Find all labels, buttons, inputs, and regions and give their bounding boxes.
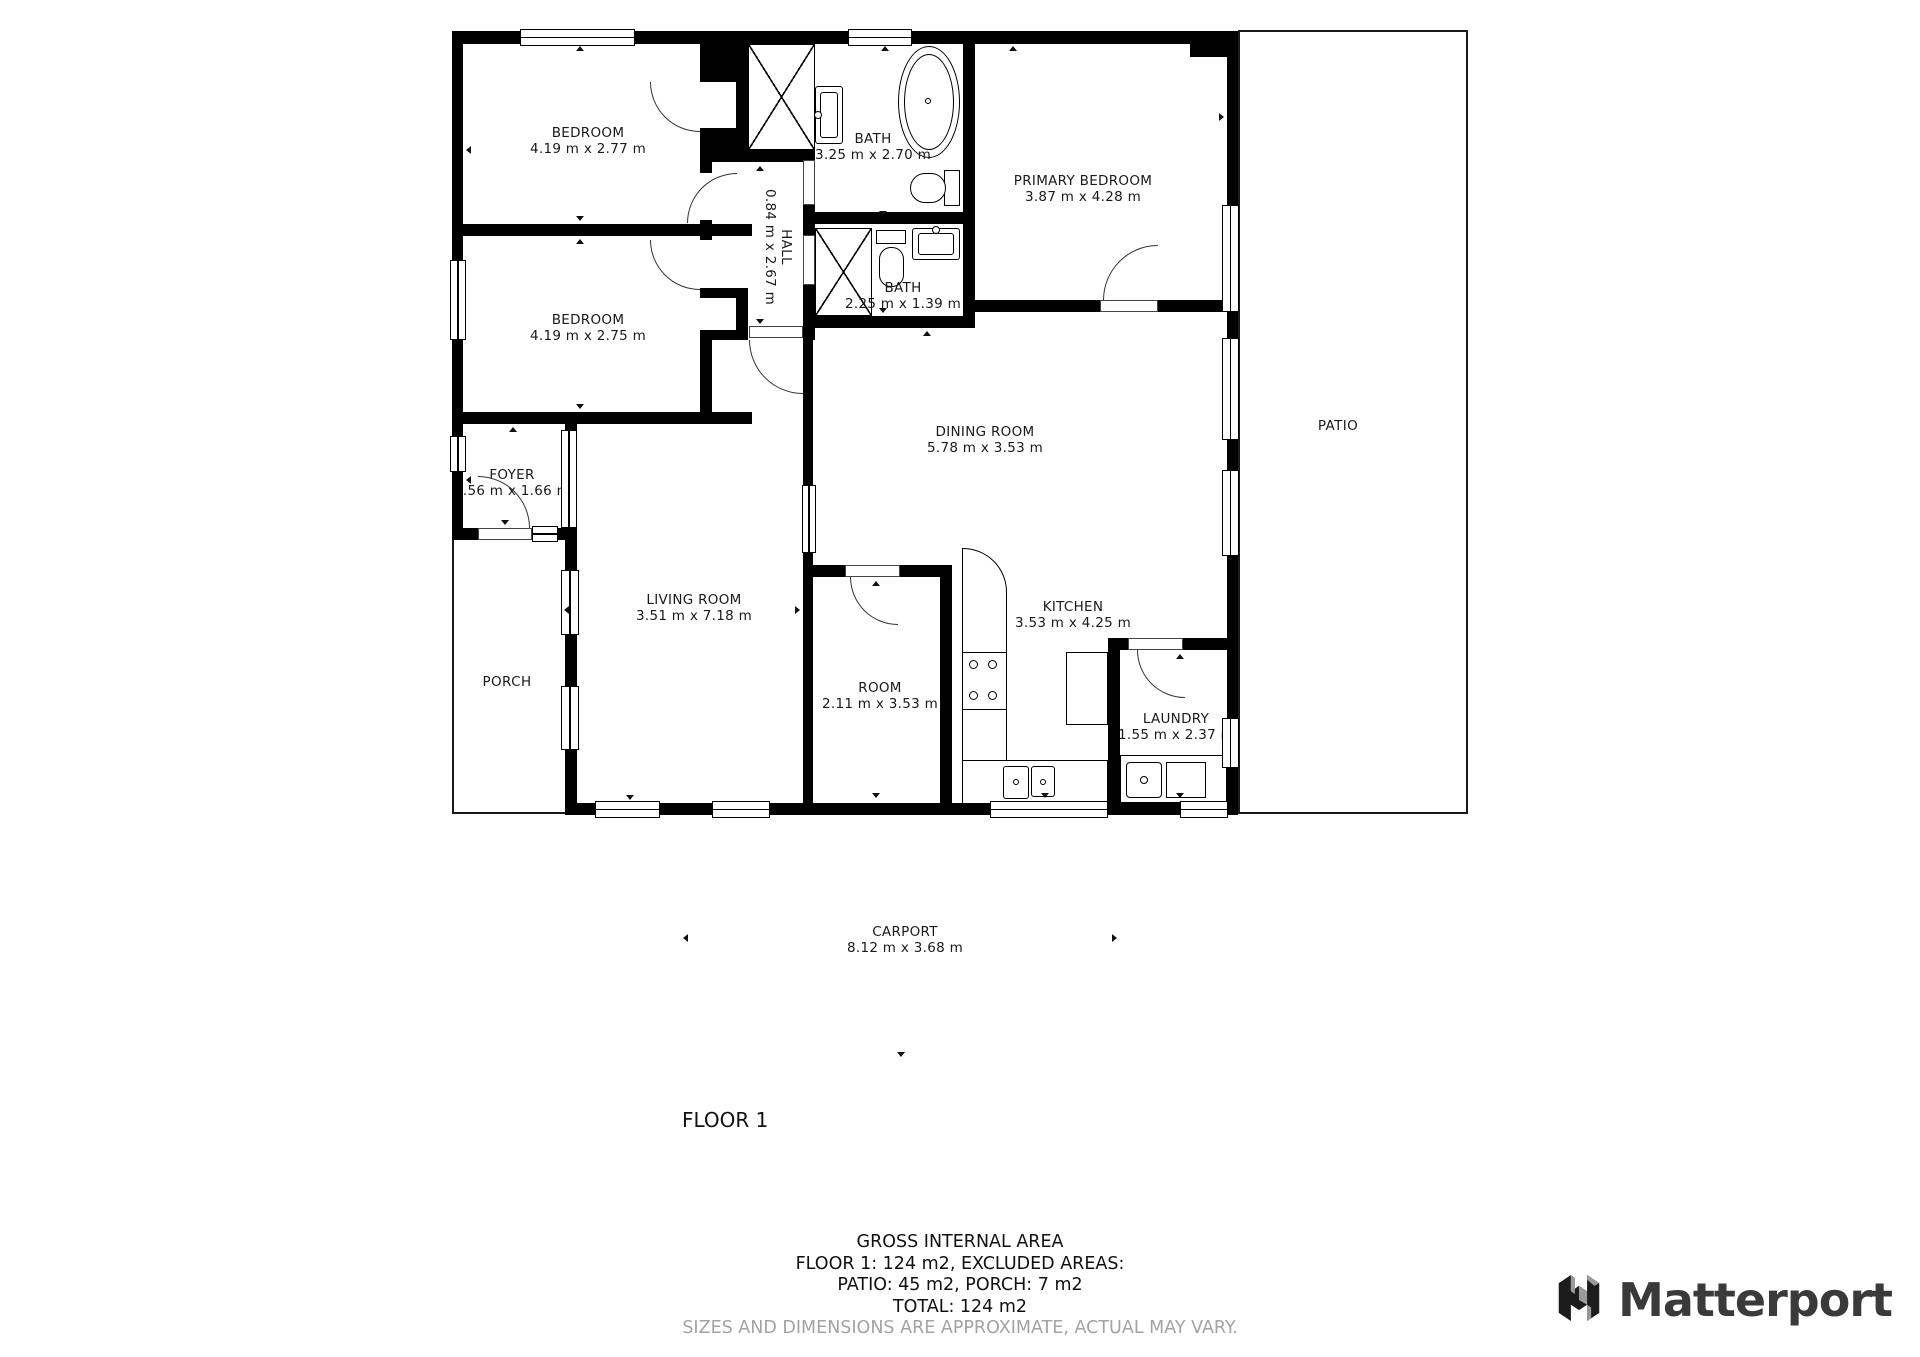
room-dims: 3.51 m x 7.18 m bbox=[636, 608, 752, 624]
wall-segment bbox=[805, 316, 975, 328]
window-icon bbox=[848, 29, 912, 46]
window-icon bbox=[712, 801, 770, 818]
window-icon bbox=[561, 686, 579, 750]
room-dims: 3.25 m x 2.70 m bbox=[815, 147, 931, 163]
dimension-tick-icon bbox=[897, 1052, 905, 1057]
room-name: BEDROOM bbox=[530, 125, 646, 141]
window-icon bbox=[595, 801, 660, 818]
room-dims: 4.19 m x 2.75 m bbox=[530, 328, 646, 344]
door-leaf bbox=[749, 326, 803, 338]
wall-segment bbox=[803, 150, 815, 160]
dimension-tick-icon bbox=[879, 308, 887, 313]
toilet-icon bbox=[910, 173, 946, 203]
room-name: PRIMARY BEDROOM bbox=[1014, 173, 1152, 189]
wall-segment bbox=[803, 553, 813, 565]
dimension-tick-icon bbox=[576, 46, 584, 51]
dimension-tick-icon bbox=[626, 795, 634, 800]
wall-segment bbox=[813, 565, 845, 577]
room-dims: 4.19 m x 2.77 m bbox=[530, 141, 646, 157]
wall-segment bbox=[700, 236, 712, 240]
shower-icon bbox=[748, 44, 815, 150]
wall-segment bbox=[736, 288, 748, 340]
washer-door-icon bbox=[1140, 776, 1148, 784]
floorplan-page: BEDROOM 4.19 m x 2.77 m BEDROOM 4.19 m x… bbox=[0, 0, 1920, 1357]
wall-segment bbox=[963, 300, 1100, 312]
room-name: BATH bbox=[815, 131, 931, 147]
toilet-icon bbox=[944, 170, 960, 206]
dimension-tick-icon bbox=[1112, 934, 1117, 942]
summary-disclaimer: SIZES AND DIMENSIONS ARE APPROXIMATE, AC… bbox=[682, 1318, 1237, 1340]
room-name: BEDROOM bbox=[530, 312, 646, 328]
burner-icon bbox=[988, 691, 997, 700]
floor-label: FLOOR 1 bbox=[682, 1108, 768, 1132]
dimension-tick-icon bbox=[872, 581, 880, 586]
room-label-carport: CARPORT 8.12 m x 3.68 m bbox=[847, 924, 963, 956]
dimension-tick-icon bbox=[683, 934, 688, 942]
room-dims: 2.11 m x 3.53 m bbox=[822, 696, 938, 712]
door-arc bbox=[650, 82, 700, 132]
faucet-icon bbox=[932, 226, 940, 234]
room-dims: 3.87 m x 4.28 m bbox=[1014, 189, 1152, 205]
burner-icon bbox=[969, 660, 978, 669]
room-label-dining-room: DINING ROOM 5.78 m x 3.53 m bbox=[927, 424, 1043, 456]
door-leaf bbox=[478, 528, 532, 540]
dimension-tick-icon bbox=[795, 606, 800, 614]
burner-icon bbox=[969, 691, 978, 700]
dimension-tick-icon bbox=[923, 331, 931, 336]
door-arc bbox=[1103, 245, 1158, 300]
wall-segment bbox=[803, 565, 813, 815]
dimension-tick-icon bbox=[576, 404, 584, 409]
wall-segment bbox=[1190, 31, 1238, 57]
window-icon bbox=[561, 570, 579, 635]
summary-title: GROSS INTERNAL AREA bbox=[682, 1232, 1237, 1254]
door-leaf bbox=[1128, 638, 1183, 650]
room-name: KITCHEN bbox=[1015, 599, 1131, 615]
room-dims: 3.53 m x 4.25 m bbox=[1015, 615, 1131, 631]
dimension-tick-icon bbox=[872, 793, 880, 798]
area-label-porch: PORCH bbox=[482, 674, 531, 690]
dimension-tick-icon bbox=[879, 211, 887, 216]
room-label-bath-main: BATH 3.25 m x 2.70 m bbox=[815, 131, 931, 163]
door-arc bbox=[687, 173, 737, 223]
window-icon bbox=[1222, 718, 1239, 768]
wall-segment bbox=[803, 285, 815, 340]
room-name: CARPORT bbox=[847, 924, 963, 940]
room-label-room: ROOM 2.11 m x 3.53 m bbox=[822, 680, 938, 712]
burner-icon bbox=[988, 660, 997, 669]
room-dims: 5.78 m x 3.53 m bbox=[927, 440, 1043, 456]
dimension-tick-icon bbox=[576, 216, 584, 221]
area-label-patio: PATIO bbox=[1318, 418, 1358, 434]
room-dims: 1.55 m x 2.37 m bbox=[1118, 727, 1234, 743]
dimension-tick-icon bbox=[1176, 654, 1184, 659]
faucet-icon bbox=[1013, 779, 1019, 785]
window-icon bbox=[450, 260, 466, 340]
summary-line1: FLOOR 1: 124 m2, EXCLUDED AREAS: bbox=[682, 1254, 1237, 1276]
matterport-wordmark: Matterport bbox=[1618, 1273, 1892, 1327]
summary-line2: PATIO: 45 m2, PORCH: 7 m2 bbox=[682, 1275, 1237, 1297]
faucet-icon bbox=[1040, 779, 1046, 785]
room-label-laundry: LAUNDRY 1.55 m x 2.37 m bbox=[1118, 711, 1234, 743]
dimension-tick-icon bbox=[466, 476, 471, 484]
room-name: ROOM bbox=[822, 680, 938, 696]
wall-segment bbox=[1108, 638, 1120, 815]
wall-segment bbox=[736, 31, 748, 162]
window-icon bbox=[1222, 205, 1239, 312]
room-label-hall: HALL 0.84 m x 2.67 m bbox=[762, 189, 794, 305]
room-name: LAUNDRY bbox=[1118, 711, 1234, 727]
door-leaf bbox=[803, 160, 815, 205]
window-icon bbox=[802, 485, 816, 553]
room-label-bath-small: BATH 2.25 m x 1.39 m bbox=[845, 280, 961, 312]
dimension-tick-icon bbox=[501, 520, 509, 525]
area-summary: GROSS INTERNAL AREA FLOOR 1: 124 m2, EXC… bbox=[682, 1232, 1237, 1340]
door-leaf bbox=[803, 235, 815, 285]
door-arc bbox=[749, 340, 803, 394]
room-name: HALL bbox=[778, 189, 794, 305]
dimension-tick-icon bbox=[576, 239, 584, 244]
dimension-tick-icon bbox=[1009, 46, 1017, 51]
bathtub-drain bbox=[925, 98, 931, 104]
sink-icon bbox=[918, 233, 954, 255]
door-arc bbox=[650, 240, 700, 290]
wall-segment bbox=[940, 565, 952, 815]
dimension-tick-icon bbox=[1176, 793, 1184, 798]
faucet-icon bbox=[814, 111, 822, 119]
door-leaf bbox=[1100, 300, 1158, 312]
dimension-tick-icon bbox=[881, 46, 889, 51]
dimension-tick-icon bbox=[756, 319, 764, 324]
fridge-icon bbox=[1066, 652, 1108, 725]
door-leaf bbox=[845, 565, 900, 577]
window-icon bbox=[450, 436, 466, 472]
window-icon bbox=[990, 801, 1108, 818]
wall-segment bbox=[803, 205, 815, 235]
room-label-living-room: LIVING ROOM 3.51 m x 7.18 m bbox=[636, 592, 752, 624]
wall-segment bbox=[700, 340, 712, 424]
wall-segment bbox=[803, 340, 813, 485]
window-icon bbox=[561, 430, 577, 528]
dimension-tick-icon bbox=[466, 146, 471, 154]
wall-segment bbox=[963, 31, 975, 328]
stove-icon bbox=[962, 652, 1007, 710]
dimension-tick-icon bbox=[756, 166, 764, 171]
room-label-kitchen: KITCHEN 3.53 m x 4.25 m bbox=[1015, 599, 1131, 631]
window-icon bbox=[1222, 338, 1239, 440]
room-name: BATH bbox=[845, 280, 961, 296]
wall-segment bbox=[700, 162, 712, 173]
wall-segment bbox=[805, 212, 975, 224]
matterport-mark-icon bbox=[1552, 1271, 1606, 1329]
window-icon bbox=[520, 29, 635, 46]
matterport-logo: Matterport bbox=[1552, 1271, 1892, 1329]
window-icon bbox=[1180, 801, 1228, 818]
room-dims: 0.84 m x 2.67 m bbox=[762, 189, 778, 305]
room-dims: 8.12 m x 3.68 m bbox=[847, 940, 963, 956]
dimension-tick-icon bbox=[1219, 113, 1224, 121]
wall-segment bbox=[1183, 638, 1238, 650]
room-label-bedroom-1: BEDROOM 4.19 m x 2.77 m bbox=[530, 125, 646, 157]
summary-line3: TOTAL: 124 m2 bbox=[682, 1297, 1237, 1319]
room-dims: 2.25 m x 1.39 m bbox=[845, 296, 961, 312]
room-label-bedroom-2: BEDROOM 4.19 m x 2.75 m bbox=[530, 312, 646, 344]
window-icon bbox=[1222, 470, 1239, 556]
window-icon bbox=[532, 526, 558, 542]
room-name: LIVING ROOM bbox=[636, 592, 752, 608]
room-label-primary-bedroom: PRIMARY BEDROOM 3.87 m x 4.28 m bbox=[1014, 173, 1152, 205]
toilet-icon bbox=[876, 230, 906, 244]
dimension-tick-icon bbox=[1041, 793, 1049, 798]
room-name: DINING ROOM bbox=[927, 424, 1043, 440]
room-name: FOYER bbox=[454, 467, 570, 483]
dimension-tick-icon bbox=[564, 606, 569, 614]
dimension-tick-icon bbox=[509, 427, 517, 432]
dryer-icon bbox=[1166, 762, 1206, 798]
wall-segment bbox=[565, 803, 1238, 815]
